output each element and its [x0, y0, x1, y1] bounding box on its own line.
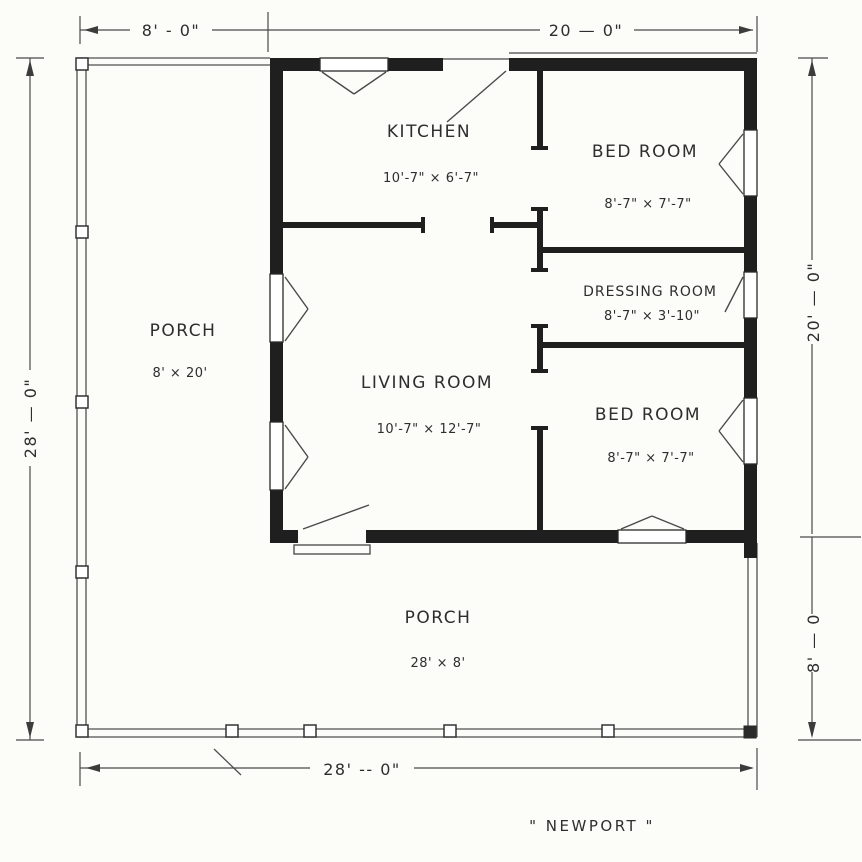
porch-left-size: 8' × 20': [152, 366, 207, 381]
floor-plan-drawing: KITCHEN 10'-7" × 6'-7" BED ROOM 8'-7" × …: [0, 0, 862, 862]
kitchen-size: 10'-7" × 6'-7": [383, 171, 479, 186]
bedroom-top-size: 8'-7" × 7'-7": [604, 197, 691, 212]
bedroom-window-casement: [621, 516, 684, 529]
dim-bottom: 28' -- 0": [323, 760, 401, 779]
partition: [492, 222, 537, 228]
wall-segment: [270, 58, 283, 274]
porch-bottom-size: 28' × 8': [410, 656, 465, 671]
partition-cap: [531, 324, 548, 328]
living-room-size: 10'-7" × 12'-7": [377, 422, 482, 437]
bedroom-window-casement: [719, 400, 743, 462]
dim-arrow-right: [739, 26, 753, 34]
partition: [537, 428, 543, 530]
partition-cap: [531, 146, 548, 150]
living-window-casement: [285, 425, 308, 489]
partition: [540, 247, 744, 253]
dim-arrow-right: [740, 764, 754, 772]
porch-post: [226, 725, 238, 737]
porch-post: [444, 725, 456, 737]
dim-arrow-left: [84, 26, 98, 34]
wall-segment: [744, 318, 757, 398]
labels: KITCHEN 10'-7" × 6'-7" BED ROOM 8'-7" × …: [21, 21, 823, 835]
porch-post: [76, 58, 88, 70]
kitchen-window: [320, 58, 388, 71]
living-room-label: LIVING ROOM: [361, 373, 493, 393]
windows: [270, 58, 757, 543]
porch-post: [76, 566, 88, 578]
partition-cap: [421, 217, 425, 233]
dim-top-right: 20 — 0": [549, 21, 624, 40]
door-threshold: [294, 545, 370, 554]
wall-segment: [388, 58, 443, 71]
porch-post: [76, 396, 88, 408]
dim-arrow-up: [808, 60, 816, 76]
porch-bottom-label: PORCH: [405, 608, 472, 628]
dim-arrow-down: [808, 722, 816, 738]
dressing-window-casement: [725, 277, 743, 312]
bedroom-window: [744, 130, 757, 196]
wall-segment: [744, 196, 757, 272]
partition: [537, 210, 543, 270]
partition: [283, 222, 424, 228]
wall-segment: [270, 530, 298, 543]
partition-cap: [531, 268, 548, 272]
floor-plan-page: KITCHEN 10'-7" × 6'-7" BED ROOM 8'-7" × …: [0, 0, 862, 862]
kitchen-window-casement: [322, 72, 386, 94]
dressing-room-label: DRESSING ROOM: [583, 284, 717, 300]
porch-corner-post: [744, 726, 756, 738]
porch-post: [304, 725, 316, 737]
wall-segment: [366, 530, 618, 543]
partition: [537, 327, 543, 371]
dim-arrow-up: [26, 60, 34, 76]
partition-cap: [531, 426, 548, 430]
plan-title: " NEWPORT ": [529, 817, 655, 835]
wall-segment: [270, 342, 283, 422]
dressing-room-size: 8'-7" × 3'-10": [604, 309, 700, 324]
wall-segment: [744, 58, 757, 130]
kitchen-door-swing: [447, 71, 506, 122]
bedroom-top-label: BED ROOM: [592, 142, 698, 162]
dim-arrow-left: [86, 764, 100, 772]
dim-right-lower: 8' — 0: [804, 613, 823, 673]
wall-segment: [509, 58, 757, 71]
dim-arrow-down: [26, 722, 34, 738]
living-window-casement: [285, 277, 308, 341]
dim-top-left: 8' - 0": [142, 21, 201, 40]
porch-stray-line: [214, 749, 241, 775]
partition: [537, 71, 543, 148]
bedroom-bottom-label: BED ROOM: [595, 405, 701, 425]
bedroom-window: [744, 398, 757, 464]
porch-post: [76, 226, 88, 238]
porch-post: [602, 725, 614, 737]
living-room-window: [270, 274, 283, 342]
living-room-window: [270, 422, 283, 490]
bedroom-window: [618, 530, 686, 543]
bedroom-window-casement: [719, 134, 743, 194]
partition-cap: [531, 369, 548, 373]
kitchen-label: KITCHEN: [387, 122, 471, 142]
porch-left-label: PORCH: [150, 321, 217, 341]
porch-post: [76, 725, 88, 737]
bedroom-bottom-size: 8'-7" × 7'-7": [607, 451, 694, 466]
exterior-walls: [270, 53, 757, 558]
dim-right-upper: 20' — 0": [804, 262, 823, 342]
partition: [540, 342, 744, 348]
dim-left: 28' — 0": [21, 378, 40, 458]
wall-segment: [744, 464, 757, 558]
dressing-room-window: [744, 272, 757, 318]
living-porch-door-swing: [303, 505, 369, 529]
partition-cap: [490, 217, 494, 233]
partition-cap: [531, 207, 548, 211]
